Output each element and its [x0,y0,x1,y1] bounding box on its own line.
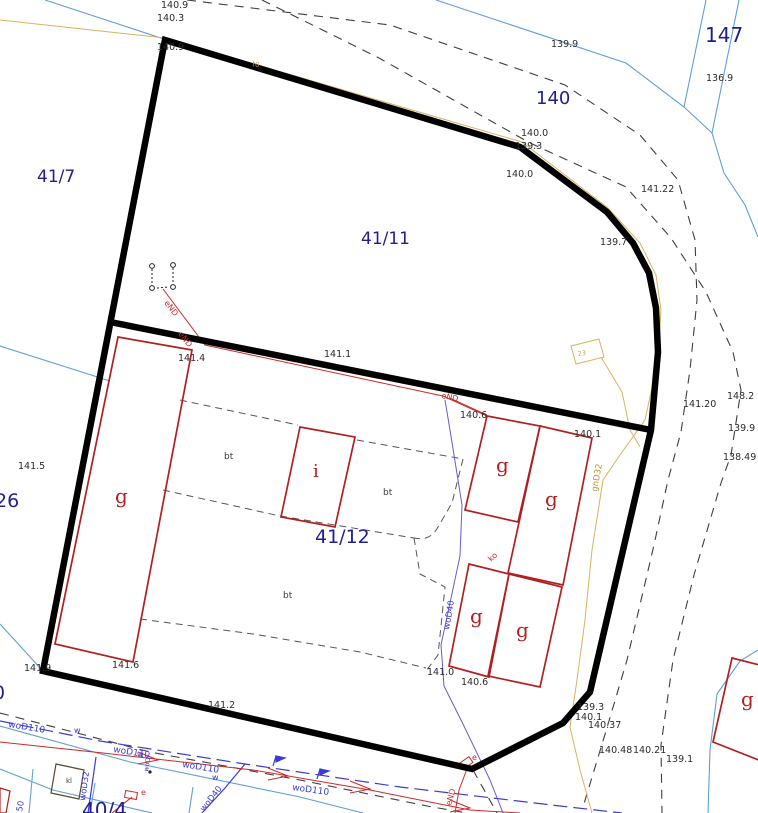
building-outlines [0,337,758,813]
utility-label: woD [142,757,152,772]
gas-cabinet-connector [601,357,640,447]
hydrant-flag-icon [276,756,285,762]
parcel-label: 0 [0,682,5,704]
elevation-label: 141.5 [18,461,45,472]
elevation-label: 139.1 [666,754,693,765]
elevation-label: 141.22 [641,184,674,195]
elevation-label: 141.9 [24,663,51,674]
elevation-label: 140.0 [506,169,533,180]
building-label: g [545,487,558,511]
utility-label: t0 [252,60,260,69]
utility-label: woD40 [198,784,224,813]
elevation-label: 141.2 [208,700,235,711]
elevation-label: 140.37 [588,720,621,731]
building-label: g [741,687,754,711]
utility-label: e [472,753,477,762]
parcel-label: 140 [536,88,570,109]
utility-label: w [212,773,219,782]
utility-label: eND [444,788,457,807]
utility-label: gnD32 [590,463,605,492]
building-label: g [115,484,128,508]
elevation-label: 140.6 [461,677,488,688]
parcel-label: 147 [705,23,743,47]
building-g-partial [713,658,758,768]
landuse-dashed-lines [140,400,463,671]
elevation-label: 136.9 [706,73,733,84]
gas-line [0,20,661,813]
road-edge-bottom [0,713,467,813]
utility-label: eND [176,330,193,349]
elevation-label: 139.9 [728,423,755,434]
elevation-label: 141.1 [324,349,351,360]
power-pole-symbol [150,263,176,291]
building-label: g [516,618,529,642]
cadastral-map[interactable]: 41/714014741/1141/1226040/4140.9140.3140… [0,0,758,813]
parcel-label: 41/12 [315,526,370,548]
elevation-label: 140.6 [460,410,487,421]
elevation-label: 139.7 [600,237,627,248]
utility-label: 23 [577,349,586,358]
elevation-label: 140.1 [574,429,601,440]
cadastral-map-viewport[interactable]: 41/714014741/1141/1226040/4140.9140.3140… [0,0,758,813]
parcel-label: 26 [0,490,19,512]
building-label: i [313,461,319,482]
elevation-label: 139.9 [551,39,578,50]
parcel-boundary-lines [0,0,758,813]
road-edge-dashed-lines [0,0,741,813]
elevation-label: 141.0 [427,667,454,678]
elevation-label: 140.21 [633,745,666,756]
utility-label: 50 [15,800,27,812]
building-label: g [496,453,509,477]
elevation-label: 139.3 [515,141,542,152]
utility-label: woD40 [442,600,457,631]
elevation-label: 140.3 [157,13,184,24]
parcel-dashed-corner [473,770,497,813]
elevation-label: 140.48 [599,745,632,756]
surface-label: kl [66,777,72,785]
building-fragment [0,788,10,813]
building-label: g [470,604,483,628]
elevation-label: 141.20 [683,399,716,410]
elevation-label: 140.9 [157,42,184,53]
surface-label: bt [383,488,393,498]
utility-label: w [137,750,144,759]
road-edge-outer [262,0,741,813]
gas-cabinet-symbol [571,339,604,364]
elevation-label: 148.2 [727,391,754,402]
elevation-label: 141.6 [112,660,139,671]
parcel-label: 41/11 [361,229,410,249]
utility-label: ko [486,551,499,564]
parcel-label: 40/4 [82,798,127,813]
parcel-label: 41/7 [37,167,75,187]
elevation-label: 138.49 [723,452,756,463]
power-cable-road [0,742,520,813]
elevation-label: 141.4 [178,353,205,364]
utility-label: e [141,788,146,797]
utility-label: eND [162,299,179,318]
hydrant-flag-icon [320,769,329,775]
surface-label: bt [224,452,234,462]
surface-label: bt [283,591,293,601]
utility-label: w [74,726,81,735]
elevation-label: 140.9 [161,0,188,11]
elevation-label: 140.0 [521,128,548,139]
